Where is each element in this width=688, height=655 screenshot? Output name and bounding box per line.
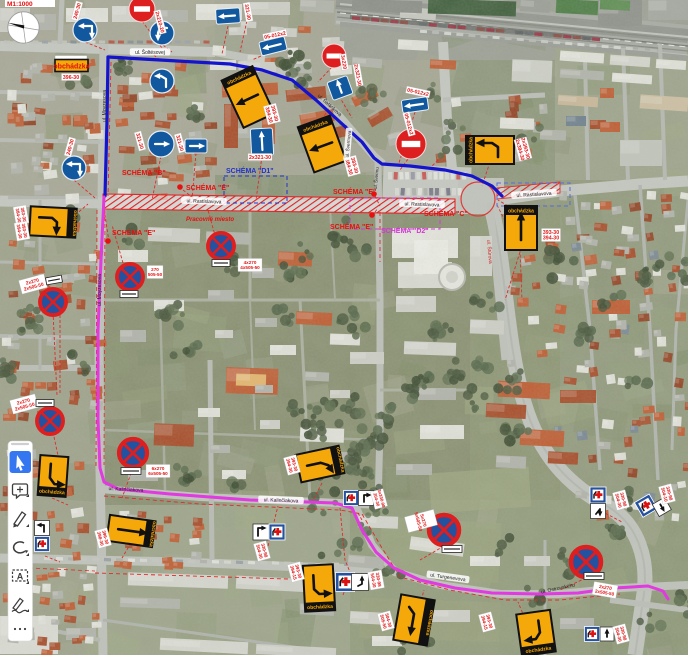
svg-text:2x321-30: 2x321-30 (249, 155, 271, 161)
svg-text:4x505-50: 4x505-50 (240, 265, 260, 270)
svg-text:SCHÉMA "E": SCHÉMA "E" (330, 222, 373, 231)
svg-text:394-30: 394-30 (543, 236, 559, 242)
svg-text:SCHÉMA "C": SCHÉMA "C" (424, 209, 468, 218)
svg-text:SCHÉMA "E": SCHÉMA "E" (112, 228, 155, 237)
svg-text:SCHÉMA "B": SCHÉMA "B" (122, 168, 166, 177)
svg-text:505-50: 505-50 (148, 272, 163, 277)
svg-text:ul. Moyzesova: ul. Moyzesova (97, 274, 103, 306)
svg-text:396-30: 396-30 (63, 75, 79, 81)
svg-text:A: A (17, 572, 24, 582)
svg-text:SCHÉMA "D1": SCHÉMA "D1" (226, 166, 274, 175)
svg-text:ul. Moyzesova: ul. Moyzesova (102, 90, 108, 122)
svg-text:SCHÉMA "E": SCHÉMA "E" (186, 183, 229, 192)
svg-text:SCHÉMA "E": SCHÉMA "E" (333, 187, 376, 196)
svg-text:M1:1000: M1:1000 (7, 1, 33, 8)
svg-text:SCHÉMA "D2": SCHÉMA "D2" (381, 226, 429, 235)
svg-text:ul. Šoltésovej: ul. Šoltésovej (135, 49, 165, 56)
svg-text:6x505-50: 6x505-50 (148, 471, 168, 476)
svg-text:ul. Rastislavova: ul. Rastislavova (186, 198, 221, 205)
svg-text:ul. Rastislavova: ul. Rastislavova (404, 201, 439, 208)
svg-text:obchádzka: obchádzka (469, 137, 475, 163)
svg-text:obchádzka: obchádzka (53, 64, 89, 71)
svg-text:ul. Kalinčiakova: ul. Kalinčiakova (263, 497, 298, 504)
svg-text:Pracovné miesto: Pracovné miesto (186, 217, 234, 223)
